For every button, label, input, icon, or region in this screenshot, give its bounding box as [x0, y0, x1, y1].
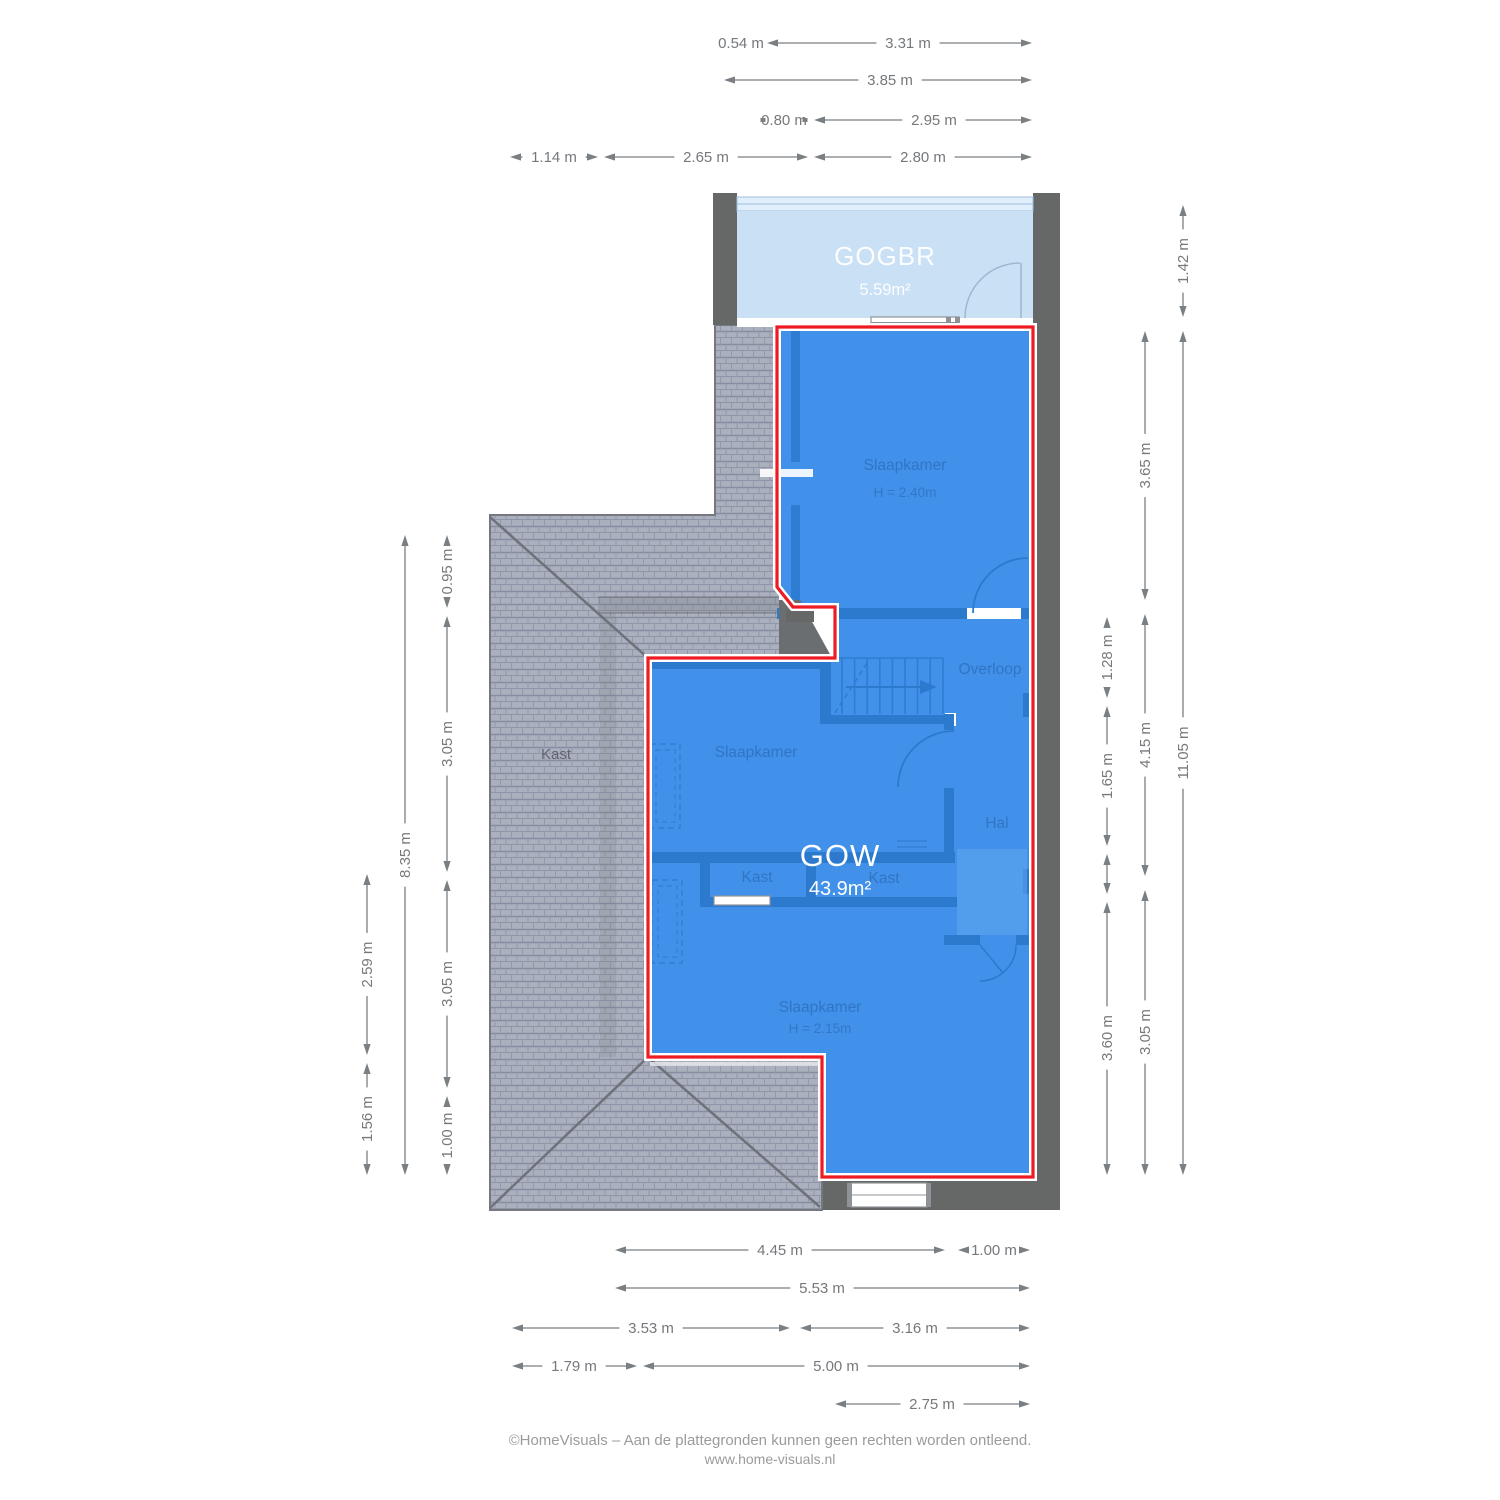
dimension-arrowhead — [1103, 687, 1110, 698]
dimension-arrowhead — [724, 76, 735, 83]
dimension-arrowhead — [443, 616, 450, 627]
dimension-arrowhead — [797, 153, 808, 160]
dimension-arrowhead — [1141, 1164, 1148, 1175]
dimension-label: 5.00 m — [813, 1358, 859, 1375]
room-label: Hal — [985, 815, 1008, 832]
dimension-arrowhead — [401, 1164, 408, 1175]
dimension-arrowhead — [1141, 890, 1148, 901]
gogbr-name-label: GOGBR — [834, 241, 936, 271]
dimension-label: 2.65 m — [683, 149, 729, 166]
dimension-label: 0.95 m — [439, 549, 456, 595]
dimension-label: 0.80 m — [761, 112, 807, 129]
dimension-arrowhead — [604, 153, 615, 160]
dimension-label: 2.80 m — [900, 149, 946, 166]
room-label: Slaapkamer — [715, 744, 798, 761]
dimension-arrowhead — [443, 1096, 450, 1107]
dimension-label: 1.14 m — [531, 149, 577, 166]
dimension-arrowhead — [1141, 614, 1148, 625]
room-label: Overloop — [959, 661, 1022, 678]
room-label: Slaapkamer — [779, 999, 862, 1016]
stairs-left-wall — [820, 658, 831, 724]
dimension-label: 11.05 m — [1175, 726, 1192, 779]
dimension-arrowhead — [443, 535, 450, 546]
dimension-arrowhead — [1019, 1246, 1030, 1253]
dimension-label: 3.31 m — [885, 35, 931, 52]
dimension-arrowhead — [814, 153, 825, 160]
room-label: Kast — [741, 869, 773, 886]
roof-knee-wall-shadow — [600, 613, 616, 1057]
dimension-arrowhead — [443, 597, 450, 608]
dimension-arrowhead — [934, 1246, 945, 1253]
dimension-arrowhead — [363, 874, 370, 885]
dimension-arrowhead — [1141, 865, 1148, 876]
footer-url: www.home-visuals.nl — [0, 1451, 1500, 1467]
room-height-label: H = 2.15m — [789, 1021, 852, 1036]
dimension-arrowhead — [1019, 1400, 1030, 1407]
dimension-label: 8.35 m — [397, 832, 414, 878]
gogbr-left-wall — [713, 193, 737, 325]
dimension-arrowhead — [510, 153, 521, 160]
room-label: Slaapkamer — [864, 457, 947, 474]
dimension-label: 2.75 m — [909, 1396, 955, 1413]
dimension-arrowhead — [626, 1362, 637, 1369]
dimension-label: 0.54 m — [718, 35, 764, 52]
dimension-arrowhead — [1179, 1164, 1186, 1175]
dimension-label: 1.65 m — [1099, 753, 1116, 799]
dimension-arrowhead — [1021, 76, 1032, 83]
floorplan: SlaapkamerH = 2.40mOverloopSlaapkamerHal… — [0, 0, 1500, 1500]
dimension-label: 1.42 m — [1175, 238, 1192, 284]
dimension-arrowhead — [767, 39, 778, 46]
dimension-label: 3.16 m — [892, 1320, 938, 1337]
dimension-arrowhead — [643, 1362, 654, 1369]
dimension-arrowhead — [615, 1246, 626, 1253]
hal-bottom-wall — [944, 935, 980, 945]
window-post — [847, 1183, 852, 1207]
dimension-label: 3.85 m — [867, 72, 913, 89]
floorplan-canvas: SlaapkamerH = 2.40mOverloopSlaapkamerHal… — [0, 0, 1500, 1500]
dimension-arrowhead — [443, 861, 450, 872]
notch-wall-stub — [786, 610, 814, 622]
room-height-label: H = 2.40m — [874, 485, 937, 500]
dimension-arrowhead — [401, 535, 408, 546]
right-wall — [1033, 193, 1060, 1210]
dimension-arrowhead — [1021, 116, 1032, 123]
dimension-arrowhead — [1179, 205, 1186, 216]
footer-disclaimer: ©HomeVisuals – Aan de plattegronden kunn… — [0, 1432, 1500, 1449]
dimension-arrowhead — [512, 1324, 523, 1331]
dimension-arrowhead — [443, 1077, 450, 1088]
dimension-label: 1.28 m — [1099, 635, 1116, 681]
dimension-arrowhead — [1103, 854, 1110, 865]
dimension-label: 4.15 m — [1137, 722, 1154, 768]
dimension-label: 3.05 m — [439, 961, 456, 1007]
dimension-label: 3.05 m — [1137, 1009, 1154, 1055]
room-label: Kast — [541, 746, 572, 763]
knee-wall-gap — [760, 469, 813, 477]
dimension-arrowhead — [1141, 589, 1148, 600]
dimension-label: 1.00 m — [439, 1113, 456, 1159]
knee-wall — [791, 327, 800, 462]
dimension-arrowhead — [512, 1362, 523, 1369]
dimension-arrowhead — [363, 1044, 370, 1055]
dimension-arrowhead — [1103, 706, 1110, 717]
dimension-arrowhead — [814, 116, 825, 123]
dimension-arrowhead — [615, 1284, 626, 1291]
dimension-arrowhead — [1021, 153, 1032, 160]
gow-floor — [648, 327, 1033, 1177]
dimension-label: 2.95 m — [911, 112, 957, 129]
dimension-label: 3.60 m — [1099, 1015, 1116, 1061]
dimension-label: 2.59 m — [359, 942, 376, 988]
dimension-arrowhead — [1179, 331, 1186, 342]
dimension-tick — [761, 118, 766, 122]
dimension-label: 3.65 m — [1137, 443, 1154, 489]
dimension-label: 3.05 m — [439, 721, 456, 767]
window-post — [926, 1183, 931, 1207]
kast-left-wall — [700, 862, 710, 902]
dimension-arrowhead — [800, 1324, 811, 1331]
footer: ©HomeVisuals – Aan de plattegronden kunn… — [0, 1432, 1500, 1467]
dimension-arrowhead — [587, 153, 598, 160]
dimension-label: 1.56 m — [359, 1096, 376, 1142]
dimension-arrowhead — [443, 1164, 450, 1175]
dimension-arrowhead — [1179, 306, 1186, 317]
dimension-arrowhead — [1021, 39, 1032, 46]
dimension-arrowhead — [1103, 1164, 1110, 1175]
dimension-label: 5.53 m — [799, 1280, 845, 1297]
kast-door-front — [714, 896, 770, 905]
dimension-arrowhead — [1019, 1324, 1030, 1331]
dimension-arrowhead — [1103, 902, 1110, 913]
gow-name-label: GOW — [800, 838, 881, 873]
dimension-label: 3.53 m — [628, 1320, 674, 1337]
gow-area-label: 43.9m² — [809, 878, 872, 900]
gogbr-area-label: 5.59m² — [859, 281, 911, 299]
dimension-arrowhead — [363, 1164, 370, 1175]
top-bedroom-door-gap — [967, 608, 1021, 619]
dimension-label: 1.00 m — [971, 1242, 1017, 1259]
dimension-arrowhead — [1019, 1284, 1030, 1291]
dimension-arrowhead — [443, 880, 450, 891]
hal-wall-lower — [944, 788, 954, 854]
dimension-arrowhead — [958, 1246, 969, 1253]
dimension-arrowhead — [1103, 835, 1110, 846]
room-gow — [648, 327, 1033, 1177]
dimension-arrowhead — [779, 1324, 790, 1331]
stairs-bottom-wall — [820, 715, 952, 724]
bottom-window — [847, 1183, 931, 1207]
dimension-tick — [803, 118, 808, 122]
dimension-label: 1.79 m — [551, 1358, 597, 1375]
hal-floor-mat — [957, 849, 1027, 935]
dimension-label: 4.45 m — [757, 1242, 803, 1259]
dimension-arrowhead — [1103, 883, 1110, 894]
dimension-arrowhead — [1103, 617, 1110, 628]
dimension-arrowhead — [363, 1063, 370, 1074]
knee-wall — [791, 505, 800, 608]
hal-wall-upper — [944, 714, 954, 730]
dimension-arrowhead — [1019, 1362, 1030, 1369]
dimension-arrowhead — [1141, 331, 1148, 342]
dimension-arrowhead — [835, 1400, 846, 1407]
